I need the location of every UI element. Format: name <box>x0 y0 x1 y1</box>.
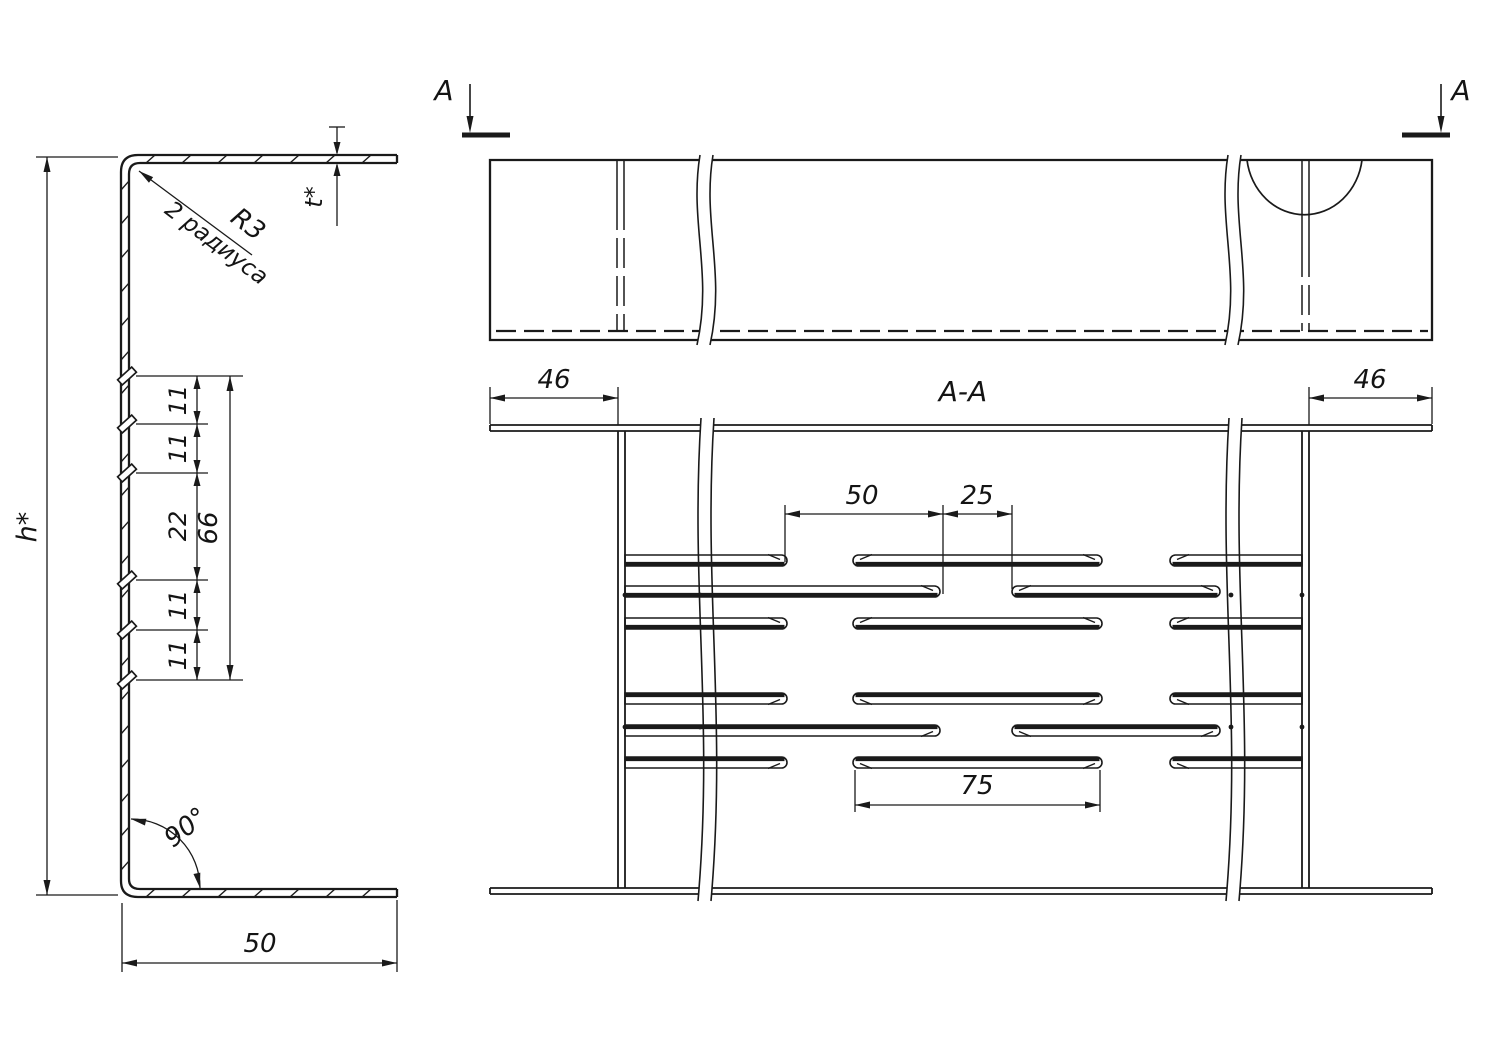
section-a-a-view: A-A 46 46 50 25 75 <box>490 365 1432 901</box>
section-dimension-lines <box>490 387 1432 812</box>
plan-view-break-lines <box>697 155 1244 345</box>
dim-label-thickness: t* <box>300 186 328 207</box>
louver-slots <box>623 555 1305 769</box>
dim-label-notch-span: 66 <box>194 511 224 544</box>
dim-label-notch-pitch-4: 11 <box>164 590 192 621</box>
dim-label-slot-25: 25 <box>960 481 993 511</box>
dim-label-angle: 90° <box>159 802 214 854</box>
dim-label-notch-pitch-1: 11 <box>164 385 192 416</box>
dim-label-height: h* <box>12 512 43 543</box>
section-marker-letter-right: A <box>1449 74 1470 107</box>
dim-label-notch-pitch-2: 11 <box>164 433 192 464</box>
dim-label-width: 50 <box>243 929 276 959</box>
profile-cross-section-view: h* t* R3 2 радиуса 90° 50 11 11 22 11 11… <box>12 127 397 972</box>
section-title: A-A <box>937 375 987 408</box>
dim-label-slot-50: 50 <box>845 481 878 511</box>
dim-label-flange-left: 46 <box>537 365 570 395</box>
dim-label-notch-pitch-3: 22 <box>164 511 192 542</box>
plan-view: A A <box>432 74 1470 345</box>
plan-view-outline <box>490 160 1432 340</box>
dim-label-radius-note: 2 радиуса <box>160 196 273 290</box>
dim-label-notch-pitch-5: 11 <box>164 640 192 671</box>
drawing-sheet: h* t* R3 2 радиуса 90° 50 11 11 22 11 11… <box>0 0 1500 1060</box>
dim-label-flange-right: 46 <box>1353 365 1386 395</box>
section-cut-markers <box>462 84 1450 135</box>
dim-label-slot-75: 75 <box>960 771 993 801</box>
section-marker-letter-left: A <box>432 74 453 107</box>
engineering-drawing: h* t* R3 2 радиуса 90° 50 11 11 22 11 11… <box>0 0 1500 1060</box>
